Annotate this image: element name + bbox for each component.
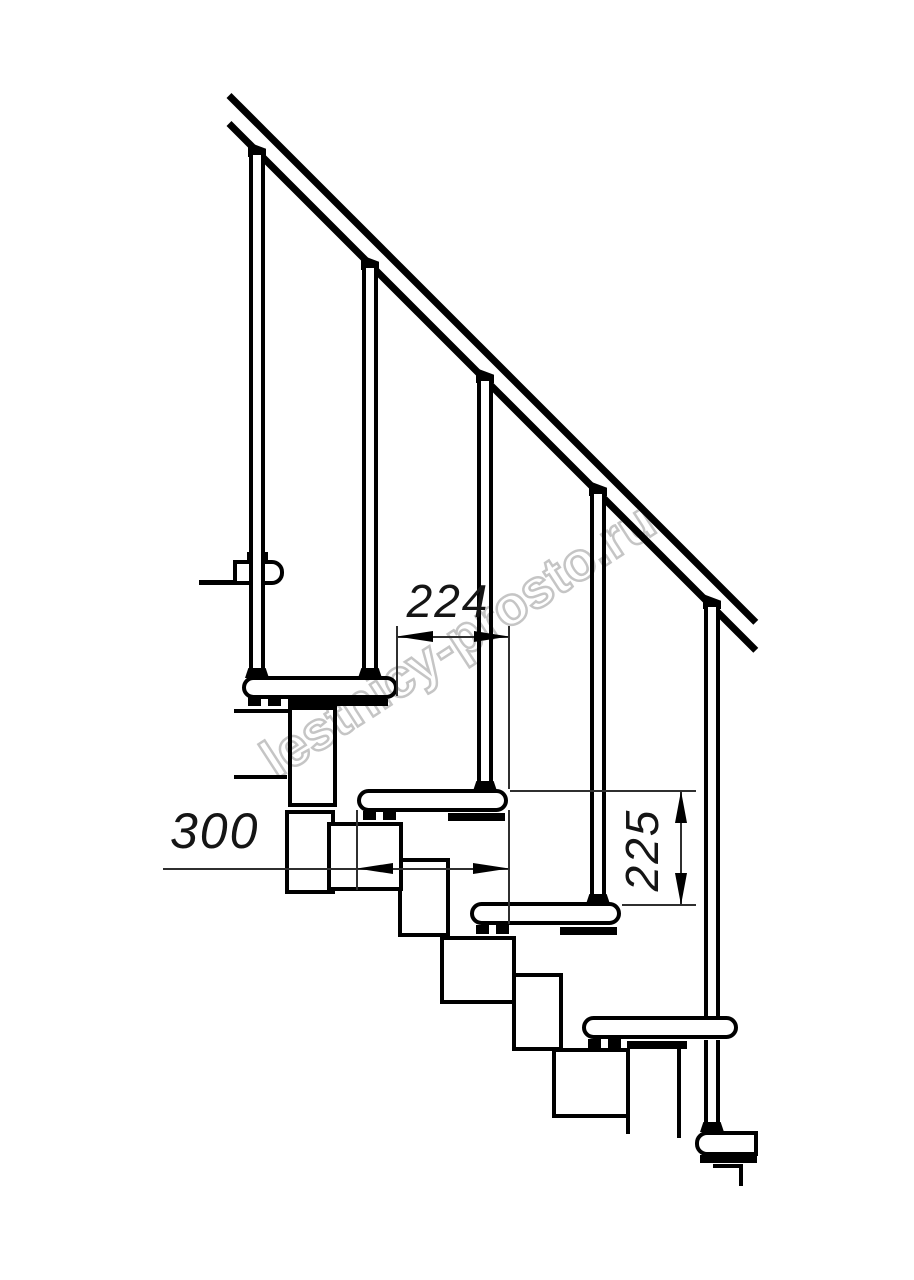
tread3-bracket-a — [363, 811, 376, 820]
module-leg-3 — [512, 973, 563, 1051]
tread-3 — [357, 789, 508, 812]
tread4-flange — [560, 927, 617, 935]
tread6-cut-line-v — [739, 1164, 743, 1186]
baluster1-foot — [245, 668, 269, 678]
dim-225-arrow-up — [675, 791, 687, 823]
baluster1-shaft — [249, 155, 265, 678]
dim-300-extension-left — [356, 810, 358, 890]
dim-300-line — [163, 868, 509, 870]
staircase-technical-drawing: 224 300 225 lestnicy-prosto.ru — [0, 0, 914, 1280]
dim-225-arrow-down — [675, 873, 687, 905]
floor-edge-line — [199, 580, 233, 585]
dim-300-extension-right — [508, 810, 510, 924]
module-cut-line-left — [626, 1118, 630, 1134]
dim-label-300: 300 — [170, 802, 290, 858]
tread3-flange — [448, 813, 505, 821]
module-box-step5 — [552, 1048, 630, 1118]
baluster2-shaft — [362, 268, 378, 678]
baluster5-foot — [700, 1122, 724, 1132]
module-box-step4 — [440, 936, 516, 1004]
dim-300-arrow-right — [473, 863, 509, 874]
baluster3-foot — [473, 781, 497, 791]
tread4-bracket-a — [476, 925, 489, 934]
baluster5-shaft-lower — [704, 1040, 720, 1132]
watermark-text: lestnicy-prosto.ru — [234, 474, 682, 806]
baluster4-foot — [586, 894, 610, 904]
module-cut-line-right — [677, 1048, 681, 1138]
dim-label-225: 225 — [615, 800, 665, 900]
tread6-flange — [700, 1155, 757, 1163]
module-box-step3 — [327, 822, 403, 891]
tread4-bracket-b — [496, 925, 509, 934]
tread3-bracket-b — [383, 811, 396, 820]
tread6-cut-line-h — [713, 1164, 739, 1168]
tread-5 — [582, 1016, 738, 1039]
tread5-bracket-b — [608, 1039, 621, 1048]
tread-6 — [695, 1131, 758, 1156]
dim-225-extension-top — [510, 790, 696, 792]
tread-4 — [470, 902, 621, 925]
tread5-bracket-a — [588, 1039, 601, 1048]
baluster5-shaft-upper — [704, 607, 720, 1017]
dim-225-extension-bottom — [622, 904, 696, 906]
tread5-flange — [627, 1041, 687, 1049]
